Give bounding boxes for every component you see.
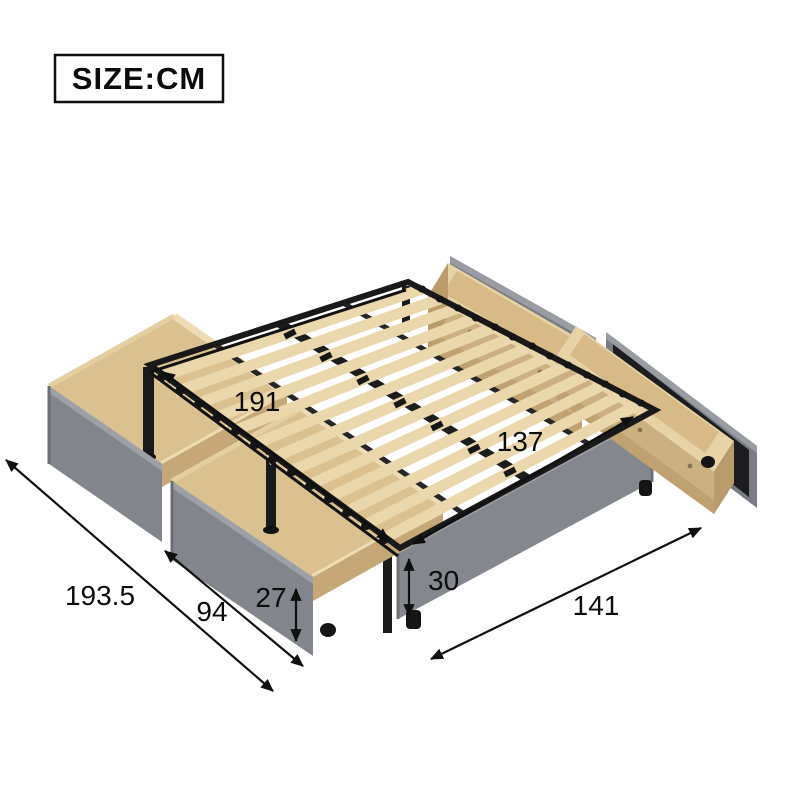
screw-hole	[638, 428, 643, 433]
size-unit-label: SIZE:CM	[72, 61, 206, 96]
dimension-label: 27	[255, 582, 286, 613]
dimension-label: 30	[428, 565, 459, 596]
dimension-label: 193.5	[65, 580, 135, 611]
dimension-label: 137	[497, 426, 544, 457]
size-unit-box: SIZE:CM	[55, 55, 223, 102]
side-rail-foot-right	[639, 480, 652, 496]
bed-frame-illustration: 191 137 193.5 94 27 30 141 SIZE:CM	[0, 0, 800, 800]
dimension-label: 94	[196, 596, 227, 627]
dimension-label: 191	[234, 386, 281, 417]
drawer-wheel	[701, 456, 715, 468]
platform-foot	[263, 526, 279, 534]
screw-hole	[688, 464, 693, 469]
drawer-wheel	[320, 623, 336, 637]
product-dimension-diagram: 191 137 193.5 94 27 30 141 SIZE:CM	[0, 0, 800, 800]
dimension-label: 141	[573, 590, 620, 621]
platform-leg	[143, 367, 154, 455]
